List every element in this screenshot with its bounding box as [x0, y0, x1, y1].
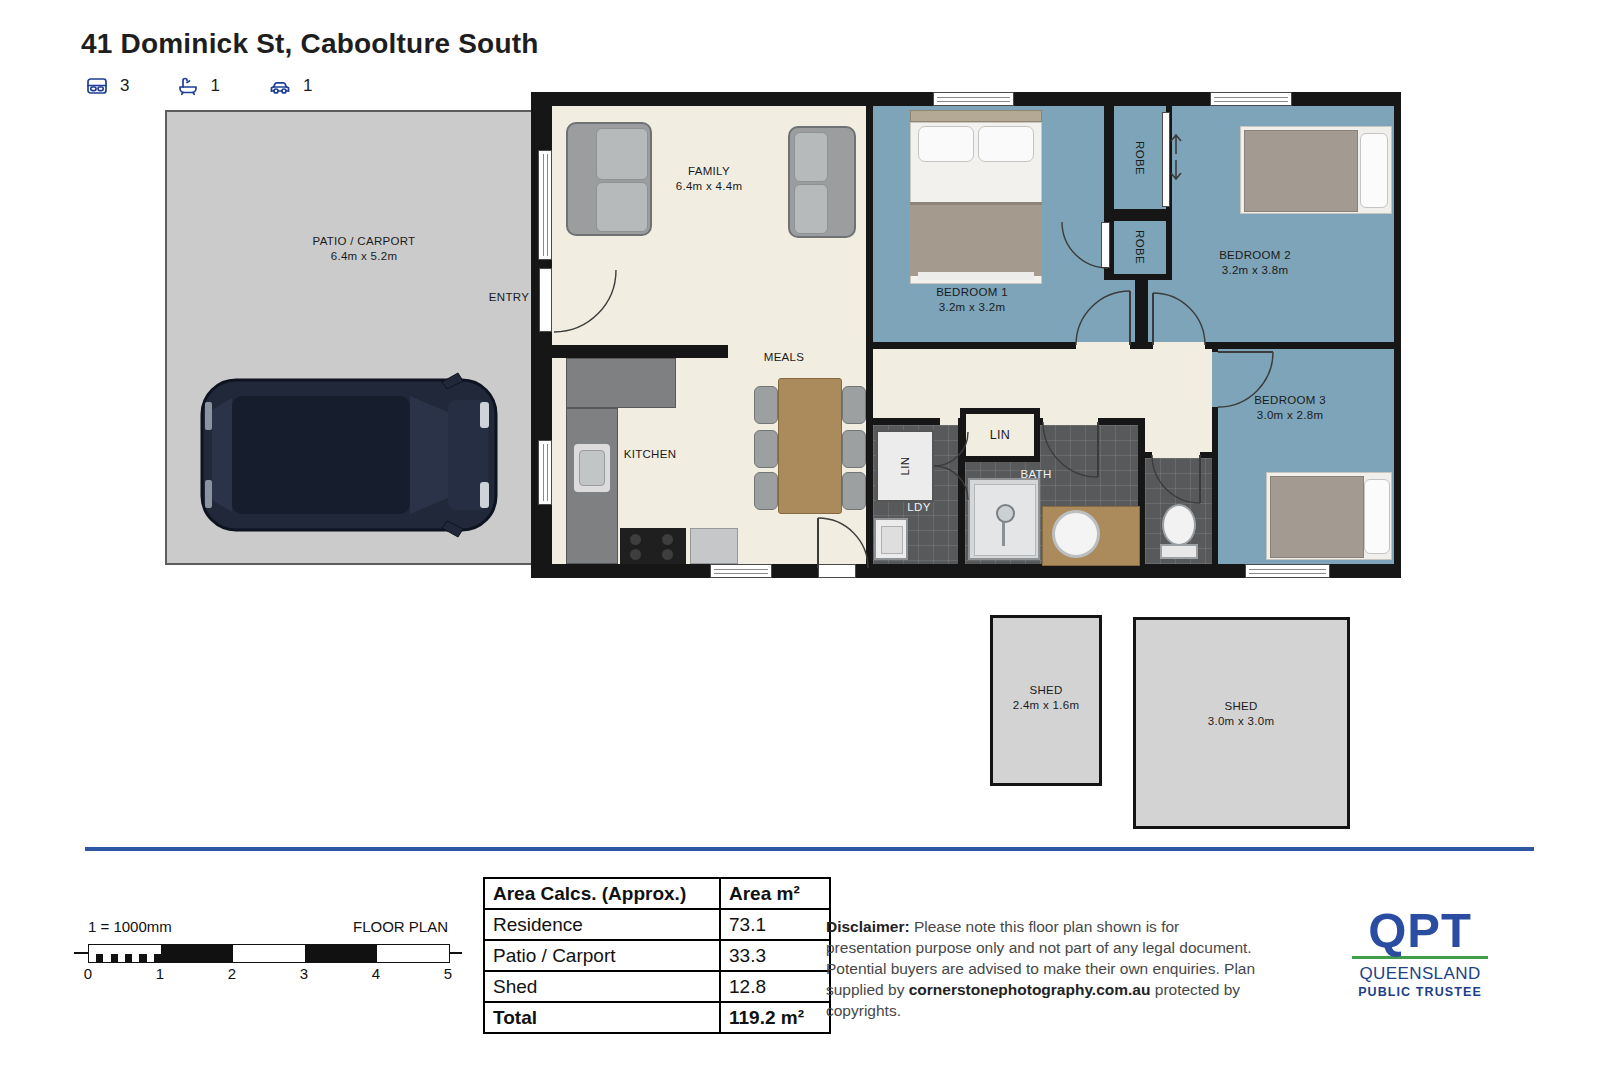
- disclaimer-heading: Disclaimer:: [826, 918, 910, 935]
- qpt-logo-region: QUEENSLAND: [1352, 964, 1488, 984]
- bed-double: [910, 110, 1042, 284]
- pillow: [1364, 479, 1390, 554]
- floor-plan-page: 41 Dominick St, Caboolture South 3: [0, 0, 1619, 1080]
- qpt-logo: QPT QUEENSLAND PUBLIC TRUSTEE: [1352, 908, 1488, 999]
- bedroom3-label: BEDROOM 3 3.0m x 2.8m: [1254, 393, 1326, 422]
- bed-single-bedroom3: [1266, 472, 1392, 560]
- hallway-floor: [873, 349, 1212, 418]
- patio-label: PATIO / CARPORT 6.4m x 5.2m: [313, 234, 416, 263]
- bath-door-gap: [1043, 418, 1098, 425]
- shower: [968, 478, 1040, 560]
- disclaimer-source: cornerstonephotography.com.au: [909, 981, 1151, 998]
- patio-dims: 6.4m x 5.2m: [313, 248, 416, 263]
- table-row: Shed 12.8: [484, 971, 830, 1002]
- family-dims: 6.4m x 4.4m: [676, 178, 743, 193]
- family-label: FAMILY 6.4m x 4.4m: [676, 164, 743, 193]
- table-header-label: Area Calcs. (Approx.): [484, 878, 720, 909]
- scale-caption: FLOOR PLAN: [353, 918, 448, 935]
- pillow: [918, 126, 974, 162]
- shed1-dims: 2.4m x 1.6m: [1013, 697, 1080, 712]
- page-title: 41 Dominick St, Caboolture South: [81, 28, 539, 60]
- hallway-extension-floor: [1145, 418, 1212, 452]
- scale-tick: 0: [76, 965, 100, 982]
- dining-table: [778, 378, 842, 514]
- disclaimer: Disclaimer: Please note this floor plan …: [826, 916, 1259, 1021]
- bedroom1-dims: 3.2m x 3.2m: [936, 299, 1008, 314]
- shed2-dims: 3.0m x 3.0m: [1208, 713, 1275, 728]
- bedroom3-dims: 3.0m x 2.8m: [1254, 407, 1326, 422]
- kitchen-wall-stub: [552, 345, 728, 358]
- laundry-label: LDY: [907, 500, 930, 515]
- duvet: [910, 202, 1042, 276]
- table-row: Patio / Carport 33.3: [484, 940, 830, 971]
- toilet-bowl: [1162, 504, 1196, 546]
- linen-laundry-label: LIN: [898, 457, 913, 476]
- kitchen-label: KITCHEN: [624, 447, 677, 462]
- car-count: 1: [266, 74, 312, 98]
- bedroom-count-value: 3: [120, 76, 129, 96]
- window-bedroom3: [1245, 564, 1330, 578]
- shed1-label: SHED 2.4m x 1.6m: [1013, 683, 1080, 712]
- dining-chair: [842, 386, 866, 424]
- dining-chair: [754, 386, 778, 424]
- entry-door-leaf: [539, 268, 552, 332]
- bedroom-count: 3: [83, 74, 129, 98]
- bedroom2-label: BEDROOM 2 3.2m x 3.8m: [1219, 248, 1291, 277]
- area-calcs-table: Area Calcs. (Approx.) Area m² Residence …: [483, 877, 831, 1034]
- shower-head: [996, 504, 1015, 523]
- qpt-logo-acronym: QPT: [1352, 908, 1488, 952]
- bathroom-count: 1: [175, 74, 219, 98]
- divider-line: [85, 847, 1534, 851]
- entry-label: ENTRY: [489, 290, 529, 305]
- dining-chair: [754, 472, 778, 510]
- sofa-left-cushion: [596, 128, 648, 180]
- vanity-basin: [1052, 510, 1100, 558]
- scale-tick: 2: [220, 965, 244, 982]
- scale-bar: 1 = 1000mm FLOOR PLAN 0 1 2 3 4 5: [74, 918, 474, 984]
- robe1-label: ROBE: [1133, 141, 1148, 175]
- bathroom-count-value: 1: [210, 76, 219, 96]
- table-header-unit: Area m²: [720, 878, 830, 909]
- table-total-row: Total 119.2 m²: [484, 1002, 830, 1033]
- scale-segments: [88, 944, 450, 963]
- pillow: [978, 126, 1034, 162]
- scale-tick: 3: [292, 965, 316, 982]
- bed-single-bedroom2: [1240, 126, 1392, 214]
- table-row: Residence 73.1: [484, 909, 830, 940]
- scale-tick: 1: [148, 965, 172, 982]
- qpt-logo-org: PUBLIC TRUSTEE: [1352, 985, 1488, 999]
- bedroom1-door-gap: [1076, 342, 1130, 349]
- kitchen-stove: [620, 528, 686, 564]
- kitchen-appliance: [690, 528, 738, 564]
- window-bedroom2: [1210, 92, 1292, 106]
- bedroom3-door-gap: [1212, 352, 1218, 407]
- bedroom2-dims: 3.2m x 3.8m: [1219, 262, 1291, 277]
- car-count-value: 1: [303, 76, 312, 96]
- robe1-sliding-door: [1162, 112, 1170, 207]
- window-family: [538, 150, 552, 260]
- meals-label: MEALS: [764, 350, 805, 365]
- dining-chair: [842, 472, 866, 510]
- robe2-door-leaf: [1101, 222, 1110, 268]
- window-kitchen: [538, 440, 552, 505]
- table-header-row: Area Calcs. (Approx.) Area m²: [484, 878, 830, 909]
- bath-label: BATH: [1020, 467, 1051, 482]
- wc-door-gap: [1152, 452, 1200, 458]
- property-stats: 3 1 1: [83, 74, 348, 98]
- window-meals: [710, 564, 772, 578]
- laundry-tub: [874, 518, 908, 560]
- dining-chair: [754, 430, 778, 468]
- blanket: [1270, 476, 1364, 558]
- pillow: [1360, 133, 1388, 208]
- blanket: [1244, 130, 1358, 212]
- bedroom2-door-gap: [1153, 342, 1205, 349]
- dining-chair: [842, 430, 866, 468]
- window-bedroom1: [933, 92, 1014, 106]
- sofa-right-cushion: [794, 184, 828, 234]
- sofa-left-cushion: [596, 182, 648, 232]
- shed2-label: SHED 3.0m x 3.0m: [1208, 699, 1275, 728]
- bedroom1-label: BEDROOM 1 3.2m x 3.2m: [936, 285, 1008, 314]
- bed-icon: [83, 74, 111, 98]
- scale-tick: 5: [436, 965, 460, 982]
- back-door-leaf: [818, 564, 856, 578]
- scale-ratio: 1 = 1000mm: [88, 918, 172, 935]
- linen-hall-label: LIN: [990, 428, 1010, 443]
- car-top-view: [196, 372, 504, 538]
- robe2-label: ROBE: [1133, 230, 1148, 264]
- sofa-right-cushion: [794, 132, 828, 182]
- scale-tick: 4: [364, 965, 388, 982]
- kitchen-sink: [572, 442, 612, 494]
- laundry-opening: [940, 418, 958, 425]
- bath-icon: [175, 74, 201, 98]
- toilet-tank: [1160, 544, 1198, 559]
- car-icon: [266, 74, 294, 98]
- kitchen-counter: [566, 358, 676, 408]
